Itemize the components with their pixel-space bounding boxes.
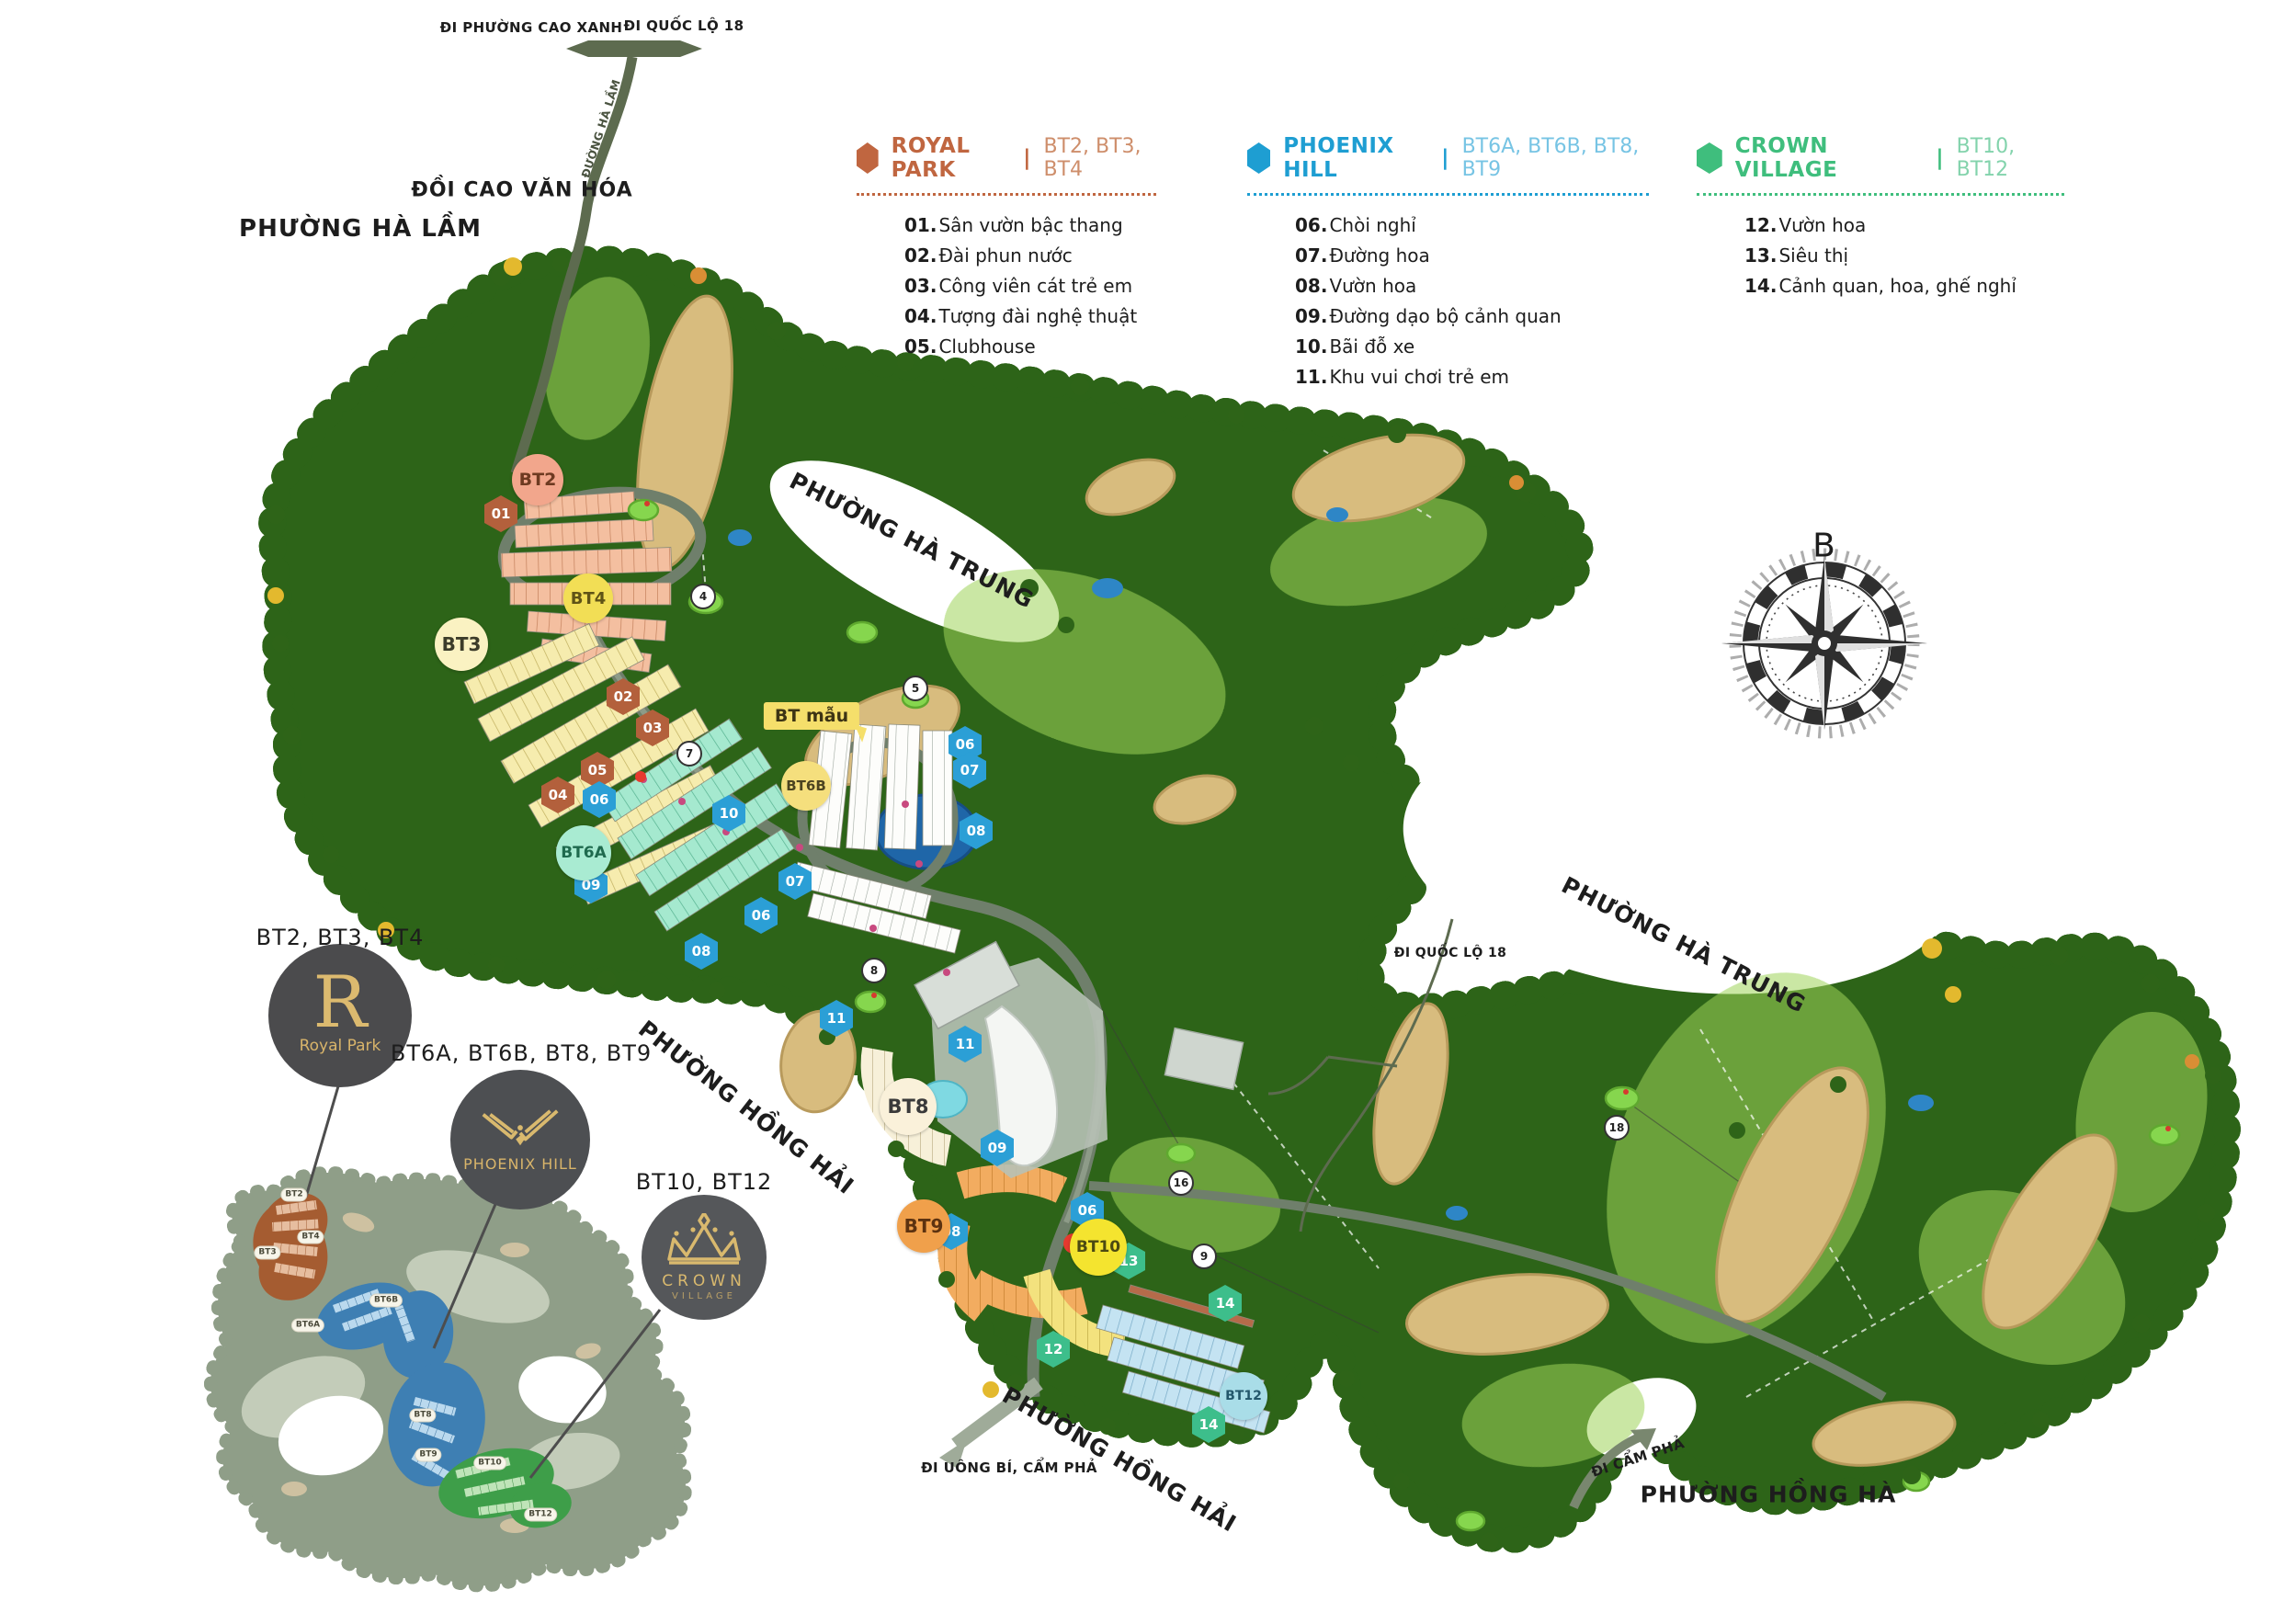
zone-badge-bt2: BT2	[512, 454, 563, 505]
golf-hole-marker-18: 18	[1604, 1115, 1630, 1141]
legend-item-phoenix-hill-08: 08.Vườn hoa	[1295, 271, 1649, 301]
label-phoenix-codes: BT6A, BT6B, BT8, BT9	[391, 1040, 652, 1066]
inset-label-bt6b: BT6B	[369, 1294, 403, 1308]
legend-section-crown-village: CROWN VILLAGE | BT10, BT12 12.Vườn hoa13…	[1697, 134, 2064, 301]
legend-items: 01.Sân vườn bậc thang02.Đài phun nước03.…	[904, 210, 1156, 362]
crown-icon	[660, 1213, 748, 1268]
legend-section-royal-park: ROYAL PARK | BT2, BT3, BT4 01.Sân vườn b…	[857, 134, 1156, 362]
legend-codes: BT10, BT12	[1957, 135, 2064, 181]
label-di-quoc-lo-18-map: ĐI QUỐC LỘ 18	[1394, 946, 1507, 960]
legend-separator: |	[1023, 146, 1030, 170]
inset-label-bt10: BT10	[473, 1457, 506, 1471]
legend-title: PHOENIX HILL	[1283, 134, 1428, 182]
legend-title: CROWN VILLAGE	[1735, 134, 1924, 182]
royal-park-monogram: R	[313, 971, 368, 1035]
dotted-divider	[1247, 193, 1649, 196]
golf-hole-marker-5: 5	[903, 676, 928, 701]
legend-item-phoenix-hill-06: 06.Chòi nghỉ	[1295, 210, 1649, 241]
golf-hole-marker-9: 9	[1191, 1244, 1217, 1269]
zone-badge-bt4: BT4	[563, 574, 613, 623]
zone-badge-bt6a: BT6A	[556, 825, 611, 880]
phoenix-hill-logo: PHOENIX HILL	[450, 1070, 590, 1209]
zone-badge-bt3: BT3	[435, 618, 488, 671]
crown-village-logo-text: CROWN	[662, 1272, 746, 1290]
dotted-divider	[1697, 193, 2064, 196]
inset-label-bt2: BT2	[280, 1188, 307, 1202]
dotted-divider	[857, 193, 1156, 196]
zone-badge-bt8: BT8	[880, 1078, 937, 1135]
zone-badge-bt9: BT9	[897, 1199, 950, 1253]
zone-badge-bt6b: BT6B	[781, 761, 831, 811]
crown-village-logo-subtext: VILLAGE	[672, 1291, 736, 1301]
legend-item-crown-village-13: 13.Siêu thị	[1744, 241, 2064, 271]
phoenix-wings-icon	[476, 1107, 564, 1150]
zone-badge-bt10: BT10	[1070, 1219, 1127, 1276]
compass-rose	[1721, 554, 1927, 733]
legend-section-phoenix-hill: PHOENIX HILL | BT6A, BT6B, BT8, BT9 06.C…	[1247, 134, 1649, 392]
royal-park-hex-icon	[857, 142, 879, 174]
inset-label-bt8: BT8	[409, 1409, 436, 1423]
legend-item-royal-park-05: 05.Clubhouse	[904, 332, 1156, 362]
legend-items: 12.Vườn hoa13.Siêu thị14.Cảnh quan, hoa,…	[1744, 210, 2064, 301]
label-phuong-ha-lam: PHƯỜNG HÀ LẦM	[239, 215, 482, 243]
royal-park-logo-text: Royal Park	[300, 1037, 381, 1055]
legend-title: ROYAL PARK	[892, 134, 1010, 182]
legend-item-royal-park-02: 02.Đài phun nước	[904, 241, 1156, 271]
legend-item-royal-park-04: 04.Tượng đài nghệ thuật	[904, 301, 1156, 332]
zone-badge-bt12: BT12	[1220, 1372, 1267, 1420]
legend-item-royal-park-01: 01.Sân vườn bậc thang	[904, 210, 1156, 241]
inset-locator-map	[210, 1173, 686, 1585]
legend-codes: BT6A, BT6B, BT8, BT9	[1462, 135, 1649, 181]
label-crown-codes: BT10, BT12	[636, 1169, 773, 1195]
crown-village-logo: CROWN VILLAGE	[642, 1195, 767, 1320]
legend-item-phoenix-hill-10: 10.Bãi đỗ xe	[1295, 332, 1649, 362]
inset-label-bt6a: BT6A	[291, 1319, 324, 1333]
inset-label-bt12: BT12	[524, 1508, 557, 1522]
inset-label-bt9: BT9	[415, 1448, 441, 1462]
golf-hole-marker-4: 4	[690, 584, 716, 609]
label-doi-cao-van-hoa: ĐỒI CAO VĂN HÓA	[411, 179, 632, 202]
bt-mau-tag: BT mẫu	[764, 702, 859, 730]
top-road-bar	[566, 40, 702, 57]
legend-items: 06.Chòi nghỉ07.Đường hoa08.Vườn hoa09.Đư…	[1295, 210, 1649, 392]
inset-label-bt4: BT4	[297, 1231, 324, 1244]
legend-item-crown-village-12: 12.Vườn hoa	[1744, 210, 2064, 241]
legend-item-royal-park-03: 03.Công viên cát trẻ em	[904, 271, 1156, 301]
phoenix-hill-hex-icon	[1247, 142, 1270, 174]
golf-hole-marker-8: 8	[861, 958, 887, 983]
crown-village-hex-icon	[1697, 142, 1722, 174]
label-royal-codes: BT2, BT3, BT4	[256, 925, 425, 950]
legend-separator: |	[1936, 146, 1943, 170]
legend-item-phoenix-hill-09: 09.Đường dạo bộ cảnh quan	[1295, 301, 1649, 332]
label-compass-north: B	[1812, 528, 1836, 565]
legend-item-phoenix-hill-07: 07.Đường hoa	[1295, 241, 1649, 271]
label-di-uong-bi-cam-pha: ĐI UÔNG BÍ, CẨM PHẢ	[921, 1459, 1097, 1476]
label-phuong-hong-ha: PHƯỜNG HỒNG HÀ	[1641, 1482, 1897, 1508]
phoenix-hill-logo-text: PHOENIX HILL	[463, 1155, 577, 1173]
golf-hole-marker-7: 7	[676, 741, 702, 767]
label-di-quoc-lo-18-top: ĐI QUỐC LỘ 18	[624, 17, 744, 34]
legend-item-crown-village-14: 14.Cảnh quan, hoa, ghế nghỉ	[1744, 271, 2064, 301]
legend-item-phoenix-hill-11: 11.Khu vui chơi trẻ em	[1295, 362, 1649, 392]
masterplan-canvas: ROYAL PARK | BT2, BT3, BT4 01.Sân vườn b…	[0, 0, 2272, 1624]
legend-codes: BT2, BT3, BT4	[1044, 135, 1156, 181]
legend-separator: |	[1441, 146, 1448, 170]
label-di-phuong-cao-xanh: ĐI PHƯỜNG CAO XANH	[440, 19, 623, 36]
inset-label-bt3: BT3	[254, 1246, 280, 1260]
golf-hole-marker-16: 16	[1168, 1170, 1194, 1196]
